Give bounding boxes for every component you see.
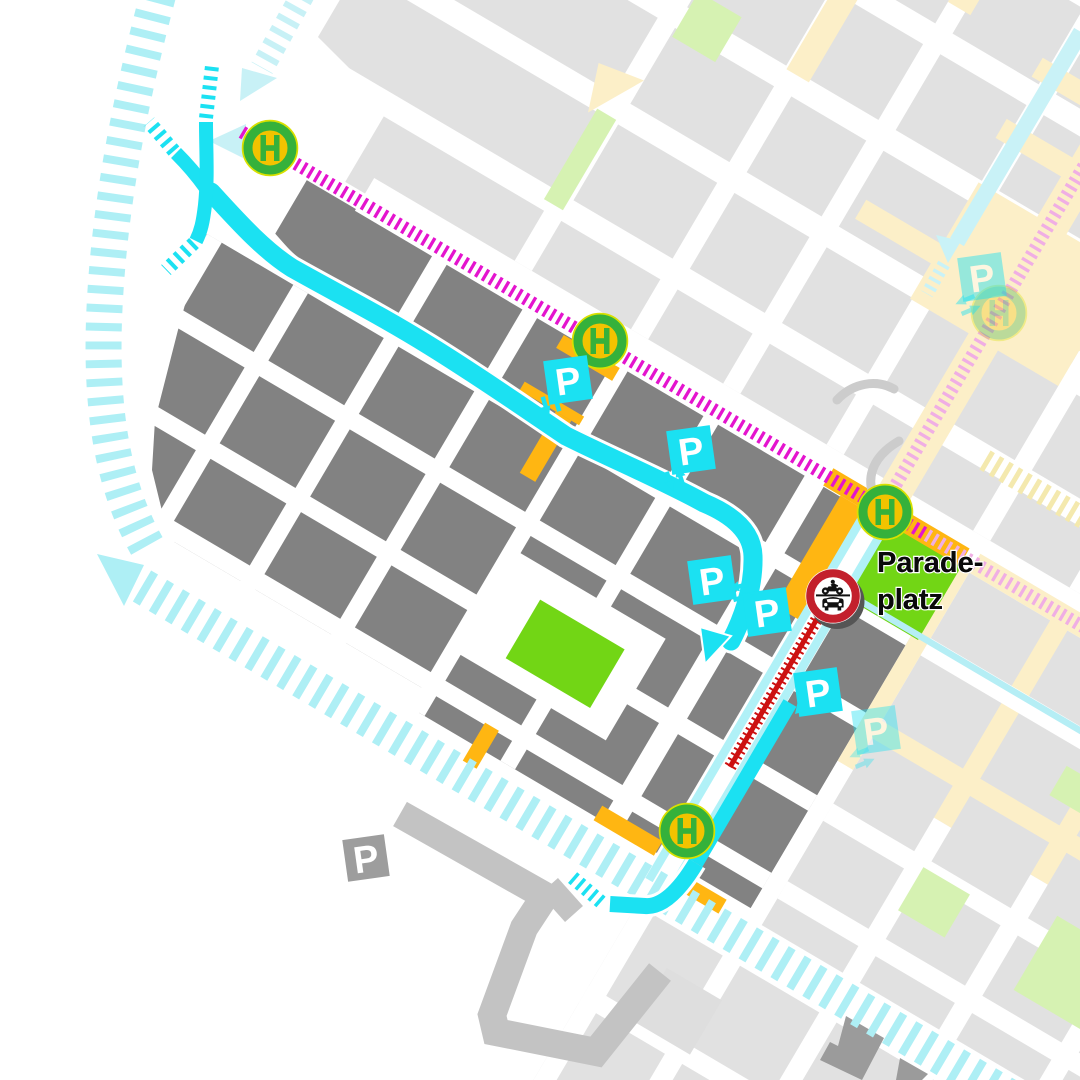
svg-text:platz: platz	[877, 584, 943, 616]
svg-text:Parade-: Parade-	[877, 547, 983, 579]
